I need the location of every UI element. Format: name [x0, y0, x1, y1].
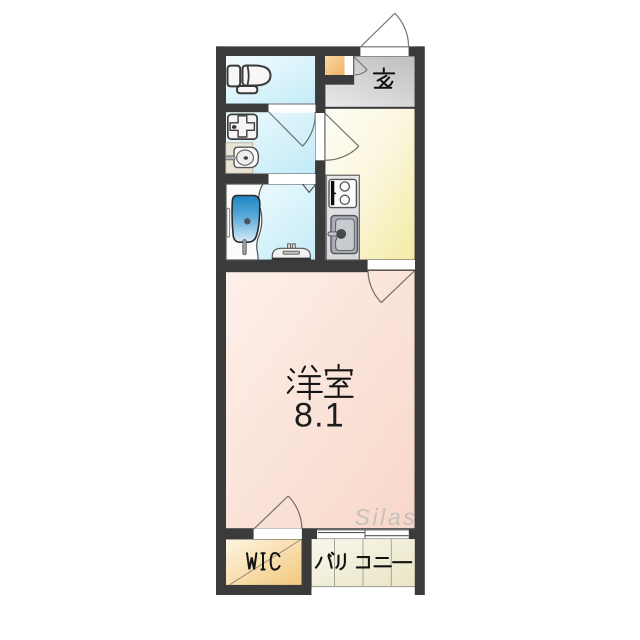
svg-text:8.1: 8.1 — [294, 396, 345, 434]
svg-text:Silas: Silas — [355, 504, 418, 530]
